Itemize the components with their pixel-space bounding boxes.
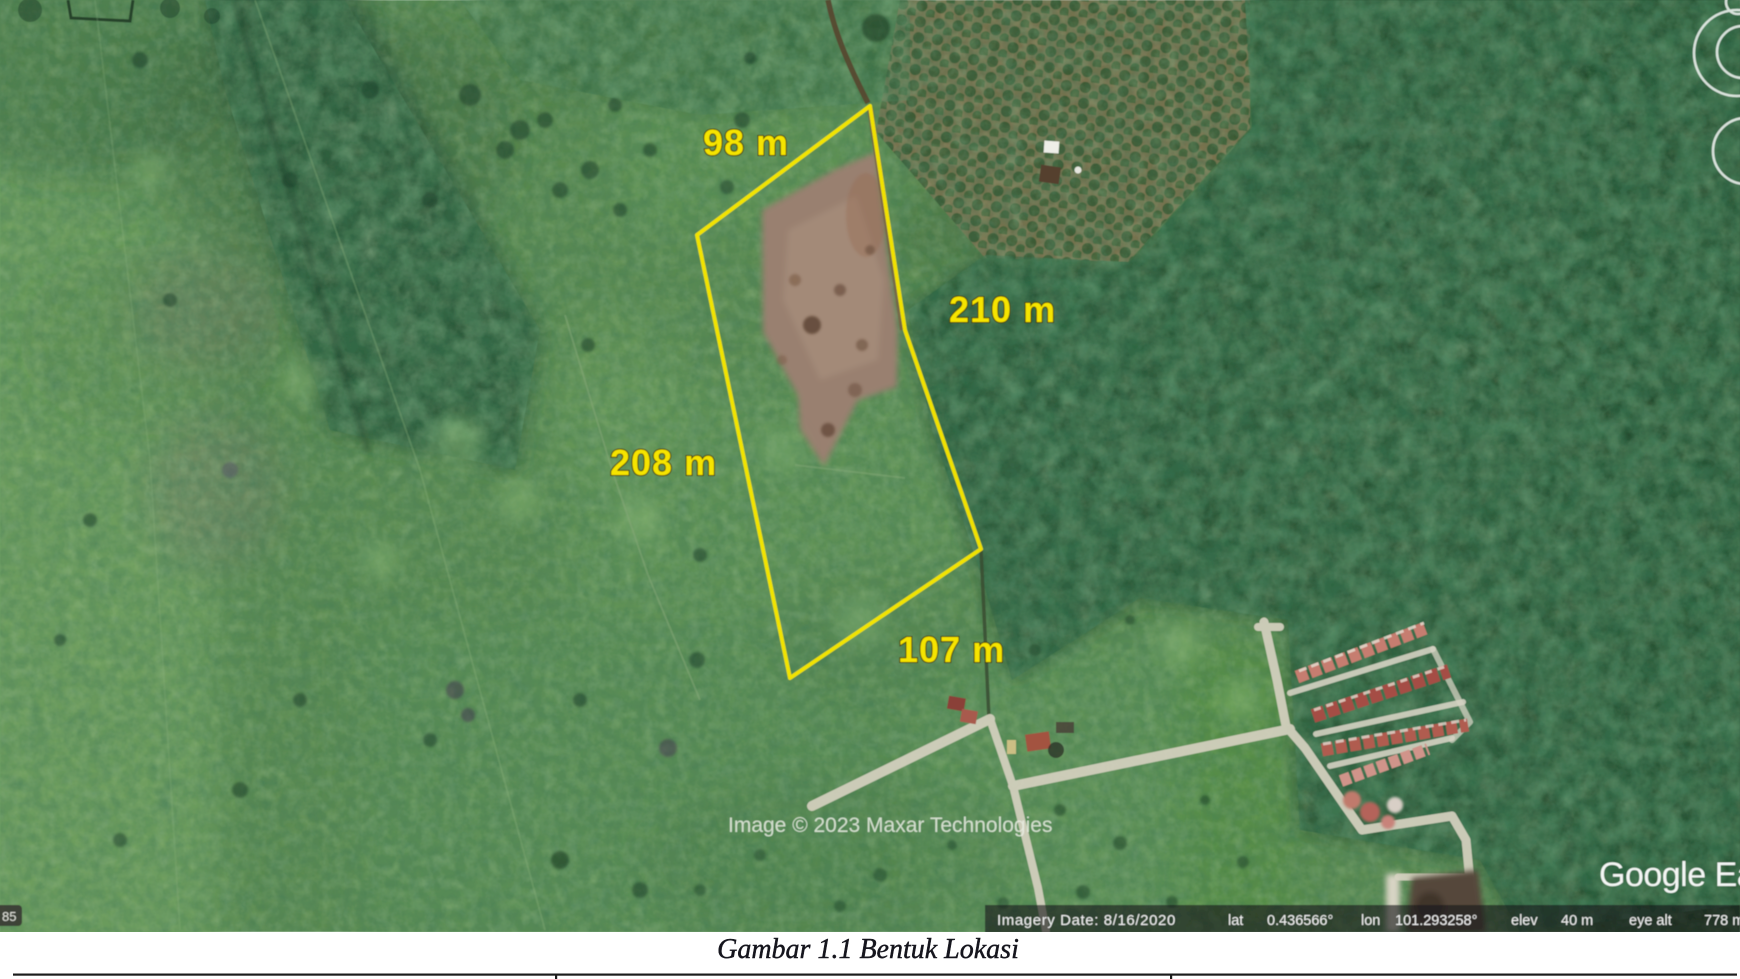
svg-text:lat: lat <box>1228 913 1243 929</box>
svg-text:107 m: 107 m <box>898 629 1005 670</box>
svg-text:Imagery Date: 8/16/2020: Imagery Date: 8/16/2020 <box>997 912 1176 929</box>
svg-text:lon: lon <box>1361 913 1380 929</box>
svg-text:Image © 2023 Maxar Technologie: Image © 2023 Maxar Technologies <box>728 814 1052 837</box>
svg-text:Google Ear: Google Ear <box>1599 856 1740 894</box>
svg-text:210 m: 210 m <box>949 289 1056 330</box>
svg-text:40 m: 40 m <box>1561 913 1593 929</box>
svg-text:Gambar 1.1 Bentuk Lokasi: Gambar 1.1 Bentuk Lokasi <box>717 934 1019 965</box>
svg-text:0.436566°: 0.436566° <box>1267 913 1333 929</box>
svg-text:208 m: 208 m <box>610 442 717 483</box>
svg-text:85: 85 <box>2 909 16 924</box>
svg-text:98 m: 98 m <box>703 122 789 163</box>
svg-text:elev: elev <box>1511 913 1538 929</box>
svg-text:eye alt: eye alt <box>1629 913 1672 929</box>
svg-text:101.293258°: 101.293258° <box>1395 913 1477 929</box>
svg-text:778 m: 778 m <box>1704 913 1740 929</box>
